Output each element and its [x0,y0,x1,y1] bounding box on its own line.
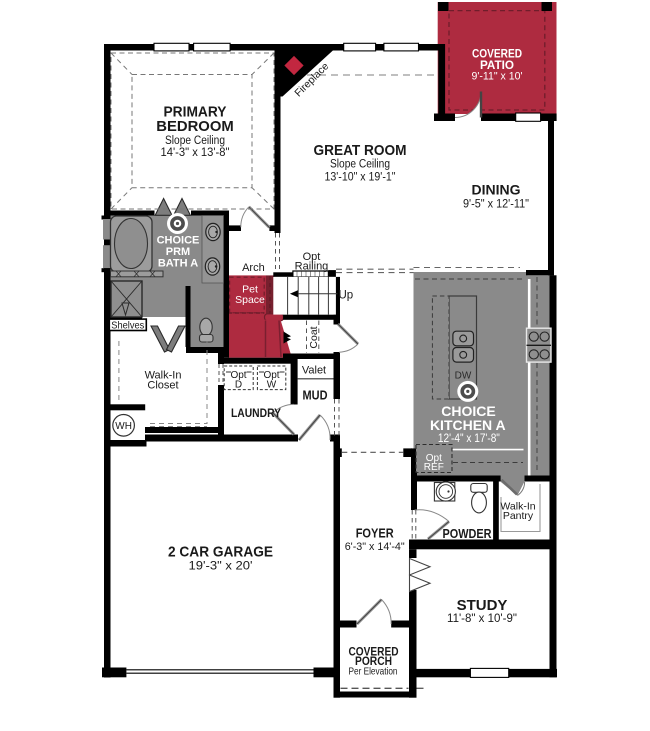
svg-text:11'-8" x 10'-9": 11'-8" x 10'-9" [447,613,517,625]
svg-text:BEDROOM: BEDROOM [156,118,234,135]
svg-text:Space: Space [235,294,265,306]
svg-text:WH: WH [115,421,132,432]
svg-text:LAUNDRY: LAUNDRY [231,406,281,420]
svg-text:KITCHEN A: KITCHEN A [430,417,506,433]
svg-text:Slope Ceiling: Slope Ceiling [165,135,225,147]
svg-text:BATH A: BATH A [158,258,198,270]
svg-text:Closet: Closet [147,380,178,392]
svg-text:STUDY: STUDY [457,597,508,614]
svg-text:Up: Up [339,290,354,302]
svg-text:9'-11" x 10': 9'-11" x 10' [472,71,523,83]
svg-text:REF: REF [424,462,444,473]
svg-text:PRM: PRM [166,246,190,258]
svg-text:2 CAR GARAGE: 2 CAR GARAGE [168,544,273,561]
svg-text:Shelves: Shelves [111,321,144,332]
svg-text:Railing: Railing [295,261,329,273]
svg-text:13'-10" x 19'-1": 13'-10" x 19'-1" [325,172,396,184]
svg-text:MUD: MUD [303,388,328,403]
svg-text:14'-3" x 13'-8": 14'-3" x 13'-8" [161,147,230,159]
svg-text:Pantry: Pantry [503,510,534,522]
svg-text:Slope Ceiling: Slope Ceiling [330,159,390,171]
svg-text:12'-4" x 17'-8": 12'-4" x 17'-8" [438,433,500,445]
svg-text:Coat: Coat [308,326,320,348]
svg-text:19'-3" x 20': 19'-3" x 20' [189,561,253,573]
svg-text:DINING: DINING [472,182,521,198]
svg-text:Arch: Arch [242,262,265,274]
svg-text:POWDER: POWDER [443,527,492,541]
svg-text:FOYER: FOYER [356,527,394,541]
svg-text:W: W [267,380,277,391]
svg-text:D: D [235,380,242,391]
svg-text:CHOICE: CHOICE [157,235,200,247]
svg-text:Per Elevation: Per Elevation [349,666,398,678]
svg-text:6'-3" x 14'-4": 6'-3" x 14'-4" [345,541,405,553]
svg-text:Valet: Valet [302,365,326,377]
svg-text:DW: DW [455,371,472,382]
svg-text:GREAT ROOM: GREAT ROOM [314,142,407,159]
svg-text:9'-5" x 12'-11": 9'-5" x 12'-11" [463,199,529,211]
